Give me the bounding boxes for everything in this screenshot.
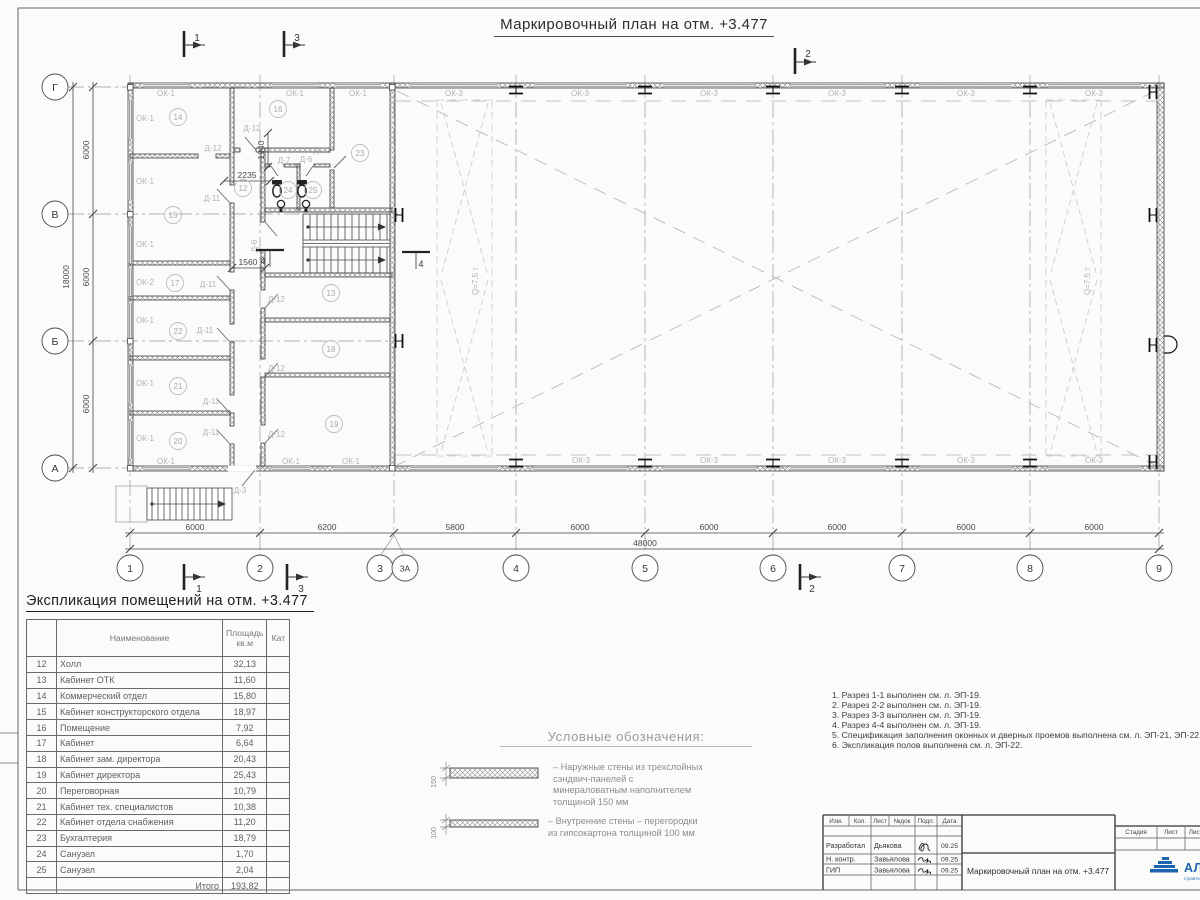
room-number: 18 [327,345,336,354]
dim-label: 6000 [81,267,91,286]
door-label: Д-12 [268,295,286,304]
table-row: 13Кабинет ОТК11,60 [27,672,290,688]
titleblock-col: Лист [873,818,887,825]
dim-label: 5800 [446,522,465,532]
titleblock-role: ГИП [826,866,840,875]
table-row: 21Кабинет тех. специалистов10,38 [27,799,290,815]
axis-bubble-label: Г [52,82,58,94]
titleblock-name: Завьялова [874,855,910,864]
window-label: ОК-1 [342,457,361,466]
room-number: 12 [239,184,248,193]
door-label: Д-12 [244,124,262,133]
titleblock-date: 09.25 [941,857,958,864]
door-label: Д-12 [268,364,286,373]
room-number: 22 [174,327,183,336]
title-block: Изм. Кол. Лист №док Подп. Дата Разработа… [823,815,1200,890]
window-label: ОК-1 [157,457,176,466]
steel-columns [128,85,1178,472]
door-label: Д-11 [203,428,220,437]
sanitary-fixtures [272,180,310,212]
plan-title: Маркировочный план на отм. +3.477 [494,16,774,37]
section-label: 2 [805,49,811,60]
notes-list: 1. Разрез 1-1 выполнен см. л. ЭП-19. 2. … [832,690,1200,750]
titleblock-sheet-col: Лист [1164,829,1178,836]
room-number: 17 [171,279,180,288]
window-label: ОК-3 [828,89,847,98]
crane-capacity-label: Q=7,5 т [471,267,480,295]
window-label: ОК-3 [700,456,719,465]
table-row: 17Кабинет6,64 [27,735,290,751]
section-marks: 1 3 2 1 3 2 4 4 [184,31,821,595]
room-number: 24 [284,186,293,195]
dim-label: 6200 [318,522,337,532]
dimensions: 6000 6200 5800 6000 6000 6000 6000 6000 … [61,82,1164,553]
total-value: 193,82 [223,878,267,894]
note-line: 2. Разрез 2-2 выполнен см. л. ЭП-19. [832,700,1200,710]
dim-total-label: 18000 [61,265,71,289]
legend-item-text: – Внутренние стены – перегородки из гипс… [548,816,703,839]
company-logo-text: АЛЬЯНС [1184,861,1200,875]
table-row: 15Кабинет конструкторского отдела18,97 [27,704,290,720]
window-label: ОК-3 [571,89,590,98]
window-label: ОК-3 [572,456,591,465]
window-label: ОК-1 [157,89,176,98]
table-row: 22Кабинет отдела снабжения11,20 [27,814,290,830]
window-label: ОК-1 [136,240,155,249]
room-number: 19 [330,420,339,429]
hall-crane-dashed [396,91,1156,465]
door-label: Д-11 [203,397,220,406]
dim-label: 6000 [571,522,590,532]
window-label: ОК-3 [957,89,976,98]
titleblock-stage-col: Стадия [1125,829,1146,836]
titleblock-col: Подп. [918,818,935,825]
schedule-table: Наименование Площадь кв.м Кат 12Холл32,1… [26,619,290,894]
legend-symbols: 150 100 [431,762,538,839]
window-label: ОК-3 [700,89,719,98]
window-label: ОК-3 [445,89,464,98]
table-row: 23Бухгалтерия18,79 [27,830,290,846]
window-label: ОК-1 [136,114,155,123]
dim-label: 6000 [1085,522,1104,532]
axis-bubble-label: 9 [1156,563,1162,575]
door-label: Д-12 [268,430,286,439]
room-number: 15 [169,211,178,220]
titleblock-col: №док [894,818,911,825]
table-row: 20Переговорная10,79 [27,783,290,799]
titleblock-date: 09.25 [941,868,958,875]
titleblock-name: Завьялова [874,866,910,875]
titleblock-role: Разработал [826,841,865,850]
door-label: Д-12 [314,146,332,155]
section-label: 2 [809,584,815,595]
dim-label: 1940 [256,140,266,159]
window-label: ОК-3 [828,456,847,465]
dim-label: 2235 [238,170,257,180]
axis-bubble-label: 3А [400,564,411,574]
axis-bubble-label: 7 [899,563,905,575]
company-logo-icon [1150,857,1178,873]
col-area: Площадь кв.м [223,620,267,657]
note-line: 3. Разрез 3-3 выполнен см. л. ЭП-19. [832,710,1200,720]
walls [128,83,1164,471]
schedule-total-row: Итого 193,82 [27,878,290,894]
room-number: 21 [174,382,183,391]
schedule-header-row: Наименование Площадь кв.м Кат [27,620,290,657]
company-logo-tagline: строительная компания [1184,876,1200,881]
table-row: 12Холл32,13 [27,657,290,673]
window-label: ОК-1 [136,434,155,443]
dim-label: 1560 [239,257,258,267]
section-label: 1 [194,33,200,44]
axis-bubble-label: А [51,463,58,475]
room-number: 16 [274,105,283,114]
legend-dim-label: 150 [431,776,438,788]
dim-label: 6000 [700,522,719,532]
door-label: Д-7 [278,156,291,165]
schedule-title: Экспликация помещений на отм. +3.477 [26,593,314,612]
axis-bubble-label: 8 [1027,563,1033,575]
axis-bubble-label: 3 [377,563,383,575]
titleblock-col: Дата [943,818,957,825]
door-label: Д-6 [300,155,313,164]
section-label: 3 [294,33,300,44]
window-label: ОК-1 [136,177,155,186]
room-number: 14 [174,113,183,122]
window-label: ОК-3 [957,456,976,465]
note-line: 5. Спецификация заполнения оконных и две… [832,730,1200,740]
dim-label: 6000 [81,394,91,413]
legend-title: Условные обозначения: [500,729,752,747]
axis-bubble-label: 2 [257,563,263,575]
titleblock-role: Н. контр. [826,855,856,864]
window-label: ОК-1 [136,316,155,325]
room-number: 23 [356,149,365,158]
axis-bubble-label: 4 [513,563,519,575]
legend-item-text: – Наружные стены из трехслойных сэндвич-… [553,762,705,808]
titleblock-doc-title: Маркировочный план на отм. +3.477 [967,866,1109,876]
room-number: 20 [174,437,183,446]
section-label: 4 [418,259,423,269]
window-label: ОК-1 [286,89,305,98]
door-label: Д-11 [197,326,214,335]
titleblock-sheets-col: Листов [1189,829,1200,836]
axis-bubble-label: 5 [642,563,648,575]
drawing-sheet: Q=7,5 т Q=7,5 т [0,0,1200,900]
axis-bubble-label: 6 [770,563,776,575]
total-label: Итого [57,878,223,894]
room-schedule: Экспликация помещений на отм. +3.477 Наи… [26,592,314,894]
table-row: 25Санузел2,04 [27,862,290,878]
window-label: ОК-2 [136,278,155,287]
legend-dim-label: 100 [431,827,438,839]
axis-bubble-label: Б [52,336,59,348]
window-label: ОК-1 [282,457,301,466]
dim-label: 6000 [186,522,205,532]
axis-bubble-label: 1 [127,563,133,575]
table-row: 24Санузел1,70 [27,846,290,862]
note-line: 1. Разрез 1-1 выполнен см. л. ЭП-19. [832,690,1200,700]
window-label: ОК-1 [136,379,155,388]
window-label: ОК-1 [349,89,368,98]
titleblock-name: Дьякова [874,841,901,850]
col-name: Наименование [57,620,223,657]
room-number: 13 [327,289,336,298]
door-label: Д-11 [200,280,217,289]
crane-capacity-label: Q=7,5 т [1083,267,1092,295]
note-line: 6. Экспликация полов выполнена см. л. ЭП… [832,740,1200,750]
titleblock-col: Кол. [854,818,867,825]
titleblock-date: 09.25 [941,843,958,850]
table-row: 14Коммерческий отдел15,80 [27,688,290,704]
window-label: ОК-3 [1085,89,1104,98]
dim-label: 6000 [828,522,847,532]
section-label: 4 [260,256,265,266]
table-row: 18Кабинет зам. директора20,43 [27,751,290,767]
titleblock-col: Изм. [829,818,843,825]
dim-total-label: 48000 [633,538,657,548]
col-cat: Кат [267,620,290,657]
signature [918,843,931,874]
table-row: 16Помещение7,92 [27,720,290,736]
room-number: 25 [309,186,318,195]
window-label: ОК-3 [1085,456,1104,465]
door-label: Д-11 [204,194,221,203]
dim-label: 6000 [957,522,976,532]
table-row: 19Кабинет директора25,43 [27,767,290,783]
axis-bubble-label: В [51,209,58,221]
dim-label: 6000 [81,140,91,159]
door-label: Д-12 [205,144,223,153]
door-label: Д-3 [234,486,247,495]
note-line: 4. Разрез 4-4 выполнен см. л. ЭП-19. [832,720,1200,730]
